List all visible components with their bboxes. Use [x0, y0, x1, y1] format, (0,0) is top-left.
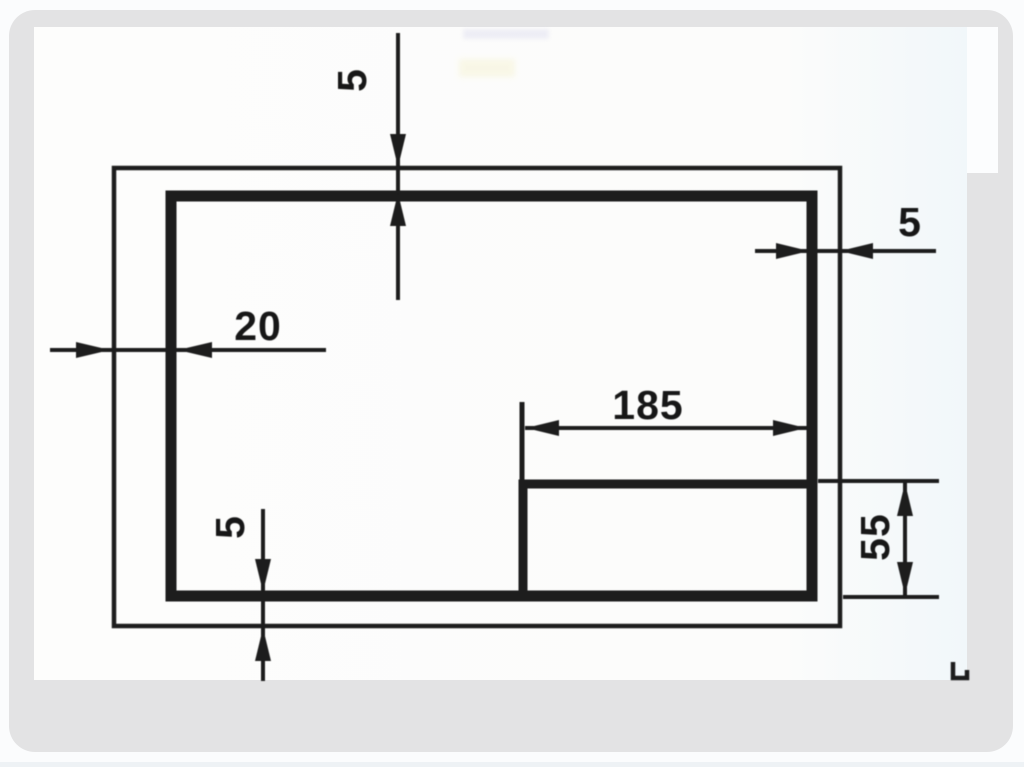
- sheet-layout-drawing: [0, 0, 1024, 767]
- dim-label-top-margin: 5: [330, 50, 374, 110]
- dim-label-title-block-height: 55: [853, 492, 897, 582]
- dim-label-title-block-width: 185: [593, 383, 703, 427]
- corner-mark: [953, 662, 967, 678]
- dim-right-margin: [755, 243, 936, 259]
- dim-label-right-margin: 5: [880, 200, 940, 244]
- paper-edge-outline: [114, 168, 840, 626]
- dim-label-left-margin: 20: [213, 304, 303, 348]
- title-block-outline: [523, 484, 812, 596]
- sheet-layout-figure: 5 5 20 185 55 5: [0, 0, 1024, 767]
- dim-label-bottom-margin: 5: [208, 497, 252, 557]
- border-frame-outline: [171, 196, 812, 596]
- page: { "page": { "background": "#fbfcfd", "pa…: [0, 0, 1024, 767]
